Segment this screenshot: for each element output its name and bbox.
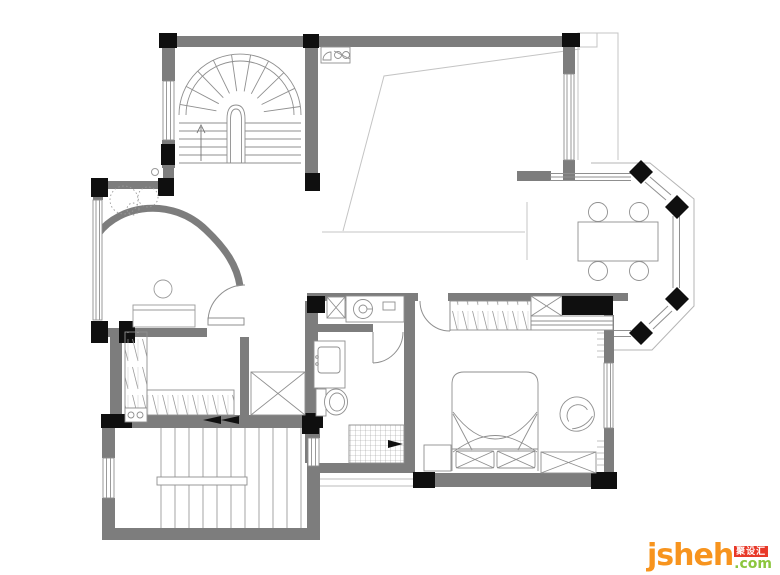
curved-staircase: [179, 47, 350, 163]
cabinet-x: [531, 296, 562, 316]
door-closet: [208, 285, 245, 325]
window-right-ext: [564, 74, 574, 160]
window-stairroom-east: [308, 438, 319, 466]
tub-chair: [554, 391, 601, 438]
walk-in-closet: [125, 332, 239, 424]
dining-chair: [630, 262, 649, 281]
curved-wall: [98, 208, 240, 286]
site-watermark: jsheh 聚设汇 .com: [647, 541, 772, 571]
wardrobe: [450, 301, 531, 330]
window-stairroom-west: [103, 458, 114, 498]
shoe-cabinet: [125, 408, 147, 422]
watermark-brand: jsheh: [647, 541, 733, 571]
corner-sink-fixture: [321, 47, 350, 63]
window-foyer-west: [93, 200, 102, 320]
pillow: [456, 451, 494, 468]
low-shelf: [531, 316, 613, 330]
window-dining-north: [550, 174, 631, 181]
void-outline-lines: [322, 49, 580, 260]
pillow: [497, 451, 535, 468]
dining-room: [578, 203, 658, 281]
dining-table: [578, 222, 658, 261]
window-bedroom-east: [604, 363, 613, 428]
door-stop: [152, 169, 159, 176]
stair-handrail: [157, 477, 247, 485]
stool: [154, 280, 172, 298]
floor-plan-page: jsheh 聚设汇 .com: [0, 0, 780, 575]
nightstand: [424, 445, 451, 471]
stair-straight-treads: [179, 123, 301, 163]
basin-counter: [346, 296, 404, 322]
door-bedroom: [420, 301, 450, 331]
lower-wall-outline: [320, 479, 413, 486]
wardrobe-bottom: [147, 390, 234, 415]
dining-chair: [589, 262, 608, 281]
dining-chair: [589, 203, 608, 222]
shaft: [251, 372, 305, 415]
shower: [349, 425, 404, 463]
dining-chair: [630, 203, 649, 222]
dimension-ticks: [597, 333, 604, 465]
door-bathroom: [373, 332, 403, 363]
window-stair-west: [163, 81, 174, 140]
desk: [133, 305, 195, 327]
bedroom: [424, 296, 613, 473]
laundry-box: [327, 297, 345, 318]
watermark-tld: .com: [734, 557, 772, 571]
wardrobe-left: [125, 332, 147, 408]
toilet: [316, 389, 348, 416]
black-sideboard: [562, 296, 613, 315]
bench: [541, 452, 596, 473]
roof-outline-lines: [578, 33, 618, 160]
bed: [452, 372, 538, 471]
floor-plan-drawing: [0, 0, 780, 575]
straight-staircase: [157, 428, 301, 528]
stair-up-arrow: [197, 125, 205, 161]
stair-arched-niche: [227, 105, 245, 163]
bathroom: [314, 296, 404, 463]
vanity: [314, 341, 345, 388]
